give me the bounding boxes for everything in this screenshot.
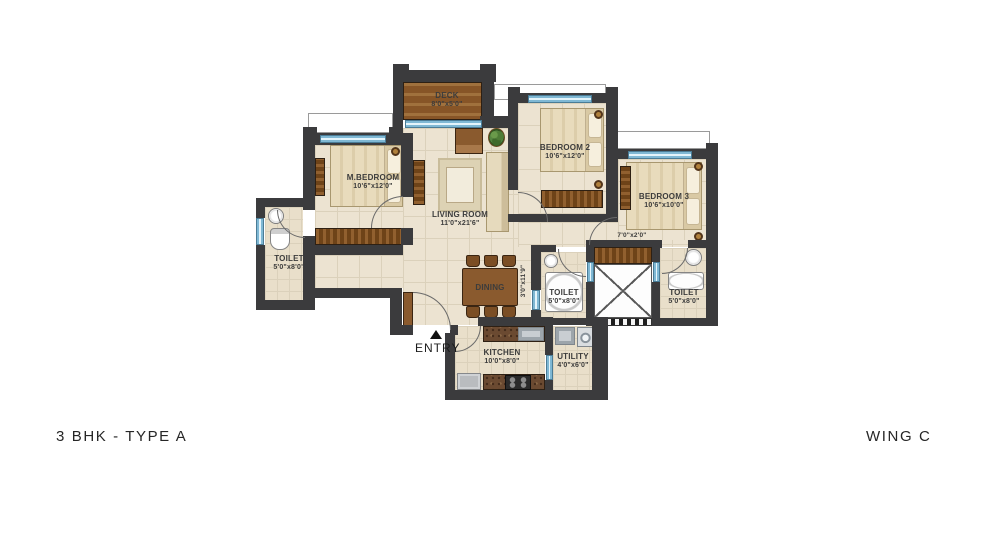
- master-bedroom-label: M.BEDROOM 10'6"x12'0": [347, 173, 399, 191]
- room-dims: 10'6"x12'0": [347, 183, 399, 191]
- wall-segment: [592, 317, 608, 400]
- wardrobe: [541, 190, 603, 208]
- window: [546, 355, 553, 380]
- toilet-right-label: TOILET 5'0"x8'0": [668, 288, 699, 306]
- room-dims: 3'0"x11'9": [520, 265, 527, 298]
- wall-segment: [256, 245, 265, 300]
- ceiling-fixture-icon: [391, 147, 400, 156]
- wardrobe: [315, 228, 403, 245]
- room-name: BEDROOM 2: [540, 143, 590, 152]
- room-name: UTILITY: [557, 352, 589, 361]
- window: [653, 262, 660, 282]
- ceiling-fixture-icon: [594, 110, 603, 119]
- room-dims: 10'6"x10'0": [639, 202, 689, 210]
- room-dims: 4'0"x6'0": [557, 362, 589, 370]
- wardrobe: [620, 166, 631, 210]
- wall-segment: [445, 390, 608, 400]
- dining-chair: [502, 255, 516, 267]
- room-name: TOILET: [669, 288, 699, 297]
- passage-dims-label: 7'0"x2'0": [617, 232, 646, 240]
- foyer-floor: [315, 255, 403, 288]
- storage-niche: [594, 247, 652, 264]
- wall-segment: [401, 133, 413, 197]
- utility-sink: [555, 327, 575, 345]
- window: [320, 135, 386, 143]
- kitchen-label: KITCHEN 10'0"x8'0": [484, 348, 521, 366]
- room-dims: 11'0"x21'6": [432, 220, 488, 228]
- wall-segment: [706, 149, 718, 326]
- window: [628, 151, 692, 159]
- wall-segment: [256, 198, 265, 218]
- dining-chair: [484, 255, 498, 267]
- wall-segment: [482, 70, 494, 122]
- ceiling-fixture-icon: [694, 162, 703, 171]
- wall-segment: [256, 300, 315, 310]
- wall-segment: [652, 240, 662, 248]
- balcony-projection-outline: [616, 131, 710, 149]
- room-dims: 7'0"x2'0": [617, 232, 646, 239]
- room-name: DINING: [475, 283, 504, 292]
- plant: [488, 128, 505, 147]
- room-name: BEDROOM 3: [639, 192, 689, 201]
- wall-segment: [390, 325, 413, 335]
- coffee-table: [446, 167, 474, 203]
- wall-segment: [303, 288, 398, 298]
- room-name: KITCHEN: [484, 348, 521, 357]
- wall-segment: [531, 245, 556, 252]
- duct-shaft: [594, 264, 652, 318]
- tv-console: [413, 160, 425, 205]
- washbasin: [544, 254, 558, 268]
- wall-segment: [688, 240, 718, 248]
- room-dims: 8'0"x5'0": [431, 101, 462, 109]
- wall-segment: [606, 143, 618, 151]
- wall-segment: [508, 93, 518, 190]
- window: [587, 262, 594, 282]
- bedside-unit: [315, 158, 325, 196]
- room-dims: 5'0"x8'0": [668, 298, 699, 306]
- ceiling-fixture-icon: [594, 180, 603, 189]
- room-name: M.BEDROOM: [347, 173, 399, 182]
- room-dims: 10'6"x12'0": [540, 153, 590, 161]
- toilet-left-label: TOILET 5'0"x8'0": [273, 254, 304, 272]
- wall-segment: [531, 318, 594, 325]
- bedroom3-label: BEDROOM 3 10'6"x10'0": [639, 192, 689, 210]
- entry-label: ENTRY: [415, 341, 460, 355]
- plan-type-title: 3 BHK - TYPE A: [56, 428, 187, 445]
- dining-label: DINING: [475, 283, 504, 293]
- room-name: TOILET: [274, 254, 304, 263]
- window: [532, 290, 540, 310]
- window: [256, 218, 264, 245]
- entry-arrow-icon: [430, 330, 442, 339]
- room-name: LIVING ROOM: [432, 210, 488, 219]
- bed-blanket: [541, 109, 586, 171]
- bedroom2-label: BEDROOM 2 10'6"x12'0": [540, 143, 590, 161]
- wall-segment: [303, 245, 403, 255]
- utility-label: UTILITY 4'0"x6'0": [557, 352, 589, 370]
- sofa: [486, 152, 509, 232]
- room-name: TOILET: [549, 288, 579, 297]
- room-name: DECK: [435, 91, 458, 100]
- room-dims: 5'0"x8'0": [548, 298, 579, 306]
- living-room-label: LIVING ROOM 11'0"x21'6": [432, 210, 488, 228]
- wing-title: WING C: [866, 428, 931, 445]
- floor-plan-canvas: DECK 8'0"x5'0" M.BEDROOM 10'6"x12'0" LIV…: [0, 0, 990, 550]
- wall-segment: [652, 318, 718, 326]
- armchair: [455, 128, 483, 154]
- kitchen-sink: [518, 327, 544, 341]
- wall-segment: [508, 87, 520, 95]
- room-dims: 10'0"x8'0": [484, 358, 521, 366]
- hall-passage-dims-label: 3'0"x11'9": [520, 265, 528, 298]
- dining-chair: [466, 255, 480, 267]
- wall-segment: [401, 228, 413, 245]
- toilet-mid-label: TOILET 5'0"x8'0": [548, 288, 579, 306]
- balcony-projection-outline: [308, 113, 393, 133]
- deck-label: DECK 8'0"x5'0": [431, 91, 462, 109]
- refrigerator: [457, 373, 481, 390]
- window: [528, 95, 592, 103]
- window: [405, 120, 482, 128]
- room-dims: 5'0"x8'0": [273, 264, 304, 272]
- stove: [505, 375, 531, 390]
